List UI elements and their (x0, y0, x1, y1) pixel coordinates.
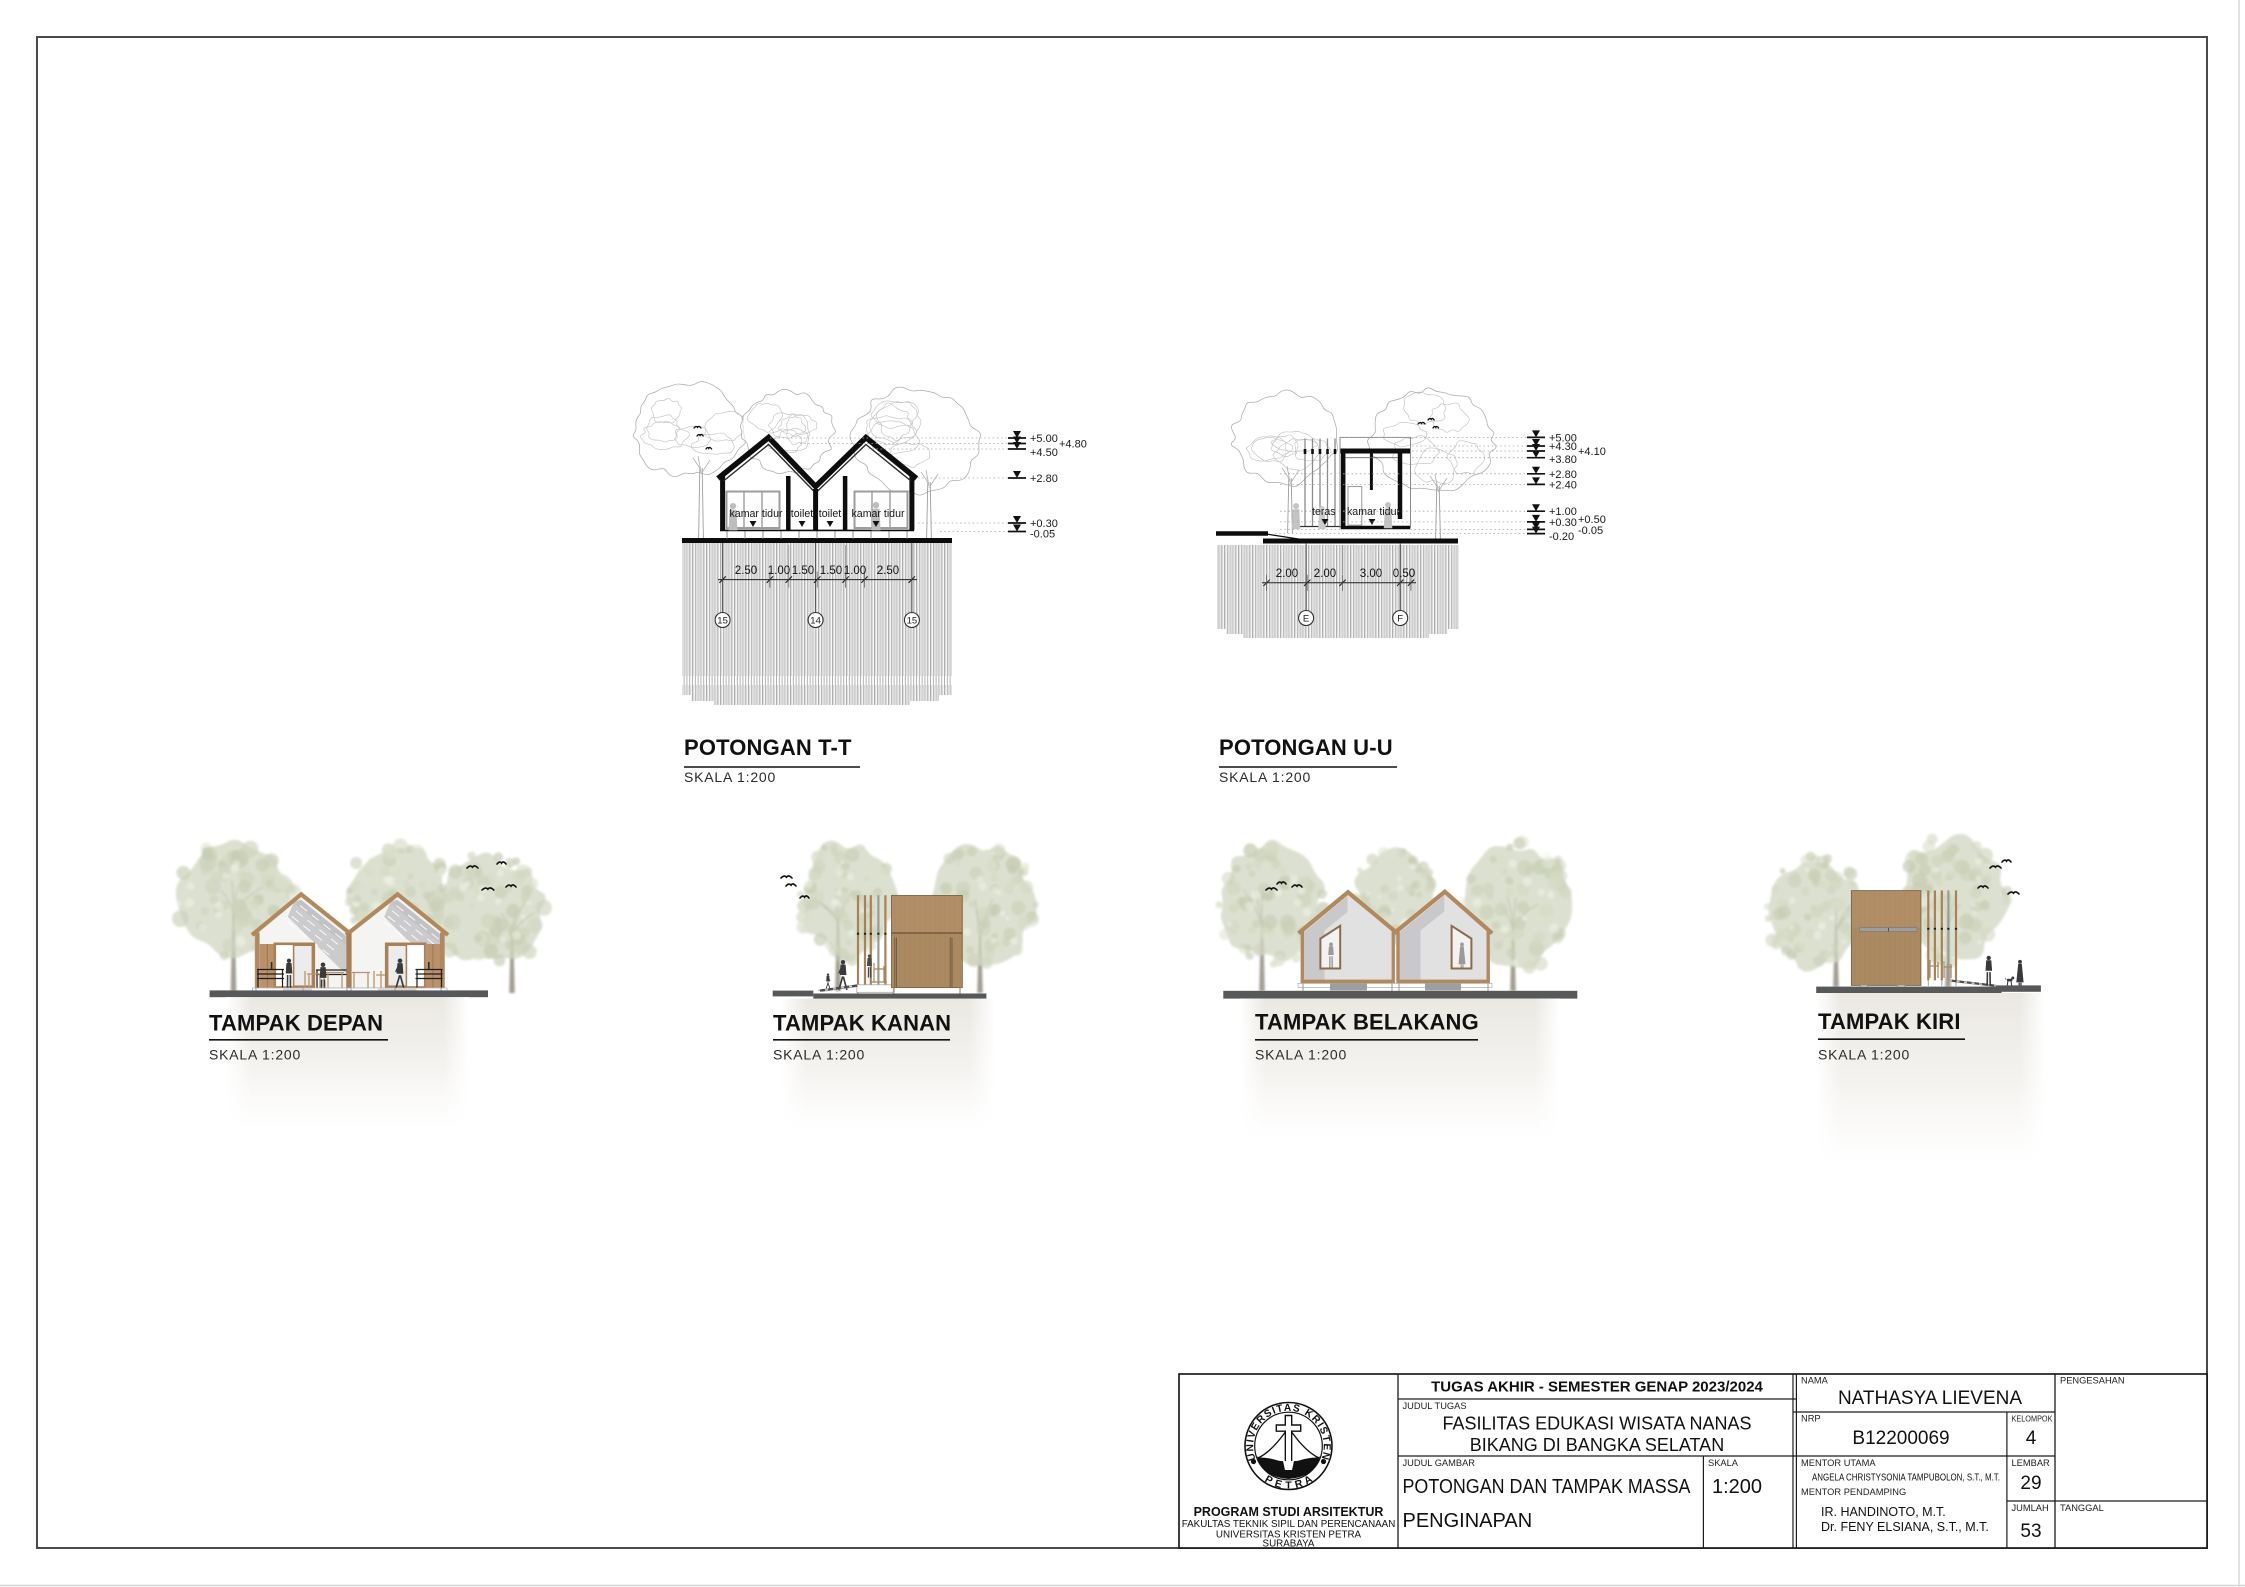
svg-text:POTONGAN U-U: POTONGAN U-U (1219, 735, 1393, 760)
svg-text:JUMLAH: JUMLAH (2012, 1503, 2049, 1513)
svg-text:FASILITAS EDUKASI WISATA NANAS: FASILITAS EDUKASI WISATA NANAS (1442, 1414, 1751, 1434)
svg-text:NAMA: NAMA (1801, 1376, 1829, 1386)
svg-text:SKALA 1:200: SKALA 1:200 (209, 1047, 301, 1063)
svg-text:MENTOR PENDAMPING: MENTOR PENDAMPING (1801, 1487, 1906, 1497)
svg-text:-0.05: -0.05 (1030, 529, 1055, 541)
svg-text:F: F (1397, 613, 1403, 624)
svg-text:JUDUL GAMBAR: JUDUL GAMBAR (1403, 1458, 1476, 1468)
svg-text:4: 4 (2026, 1428, 2037, 1449)
svg-text:-0.20: -0.20 (1549, 531, 1574, 543)
svg-text:1.50: 1.50 (820, 565, 842, 577)
svg-text:15: 15 (907, 615, 918, 626)
svg-text:POTONGAN DAN TAMPAK MASSA: POTONGAN DAN TAMPAK MASSA (1403, 1476, 1692, 1498)
svg-text:toilet: toilet (819, 508, 841, 520)
svg-text:+5.00: +5.00 (1030, 433, 1058, 445)
svg-text:TAMPAK DEPAN: TAMPAK DEPAN (209, 1010, 383, 1035)
svg-text:E: E (1303, 613, 1309, 624)
svg-text:kamar tidur: kamar tidur (1347, 506, 1400, 518)
svg-text:+4.50: +4.50 (1030, 447, 1058, 459)
svg-text:TUGAS AKHIR - SEMESTER GENAP 2: TUGAS AKHIR - SEMESTER GENAP 2023/2024 (1431, 1379, 1763, 1396)
svg-text:SKALA 1:200: SKALA 1:200 (684, 769, 776, 785)
svg-text:PROGRAM STUDI ARSITEKTUR: PROGRAM STUDI ARSITEKTUR (1194, 1505, 1384, 1519)
svg-text:JUDUL TUGAS: JUDUL TUGAS (1403, 1401, 1467, 1411)
svg-text:IR. HANDINOTO, M.T.: IR. HANDINOTO, M.T. (1821, 1505, 1946, 1519)
svg-text:1:200: 1:200 (1712, 1476, 1762, 1498)
svg-text:+4.10: +4.10 (1578, 446, 1606, 458)
svg-text:1.00: 1.00 (768, 565, 790, 577)
svg-text:BIKANG DI BANGKA SELATAN: BIKANG DI BANGKA SELATAN (1470, 1435, 1724, 1455)
svg-text:SKALA: SKALA (1708, 1458, 1739, 1468)
svg-text:T: T (1285, 1480, 1292, 1492)
svg-text:PENGINAPAN: PENGINAPAN (1403, 1510, 1533, 1532)
svg-text:15: 15 (717, 615, 728, 626)
svg-text:2.00: 2.00 (1276, 568, 1298, 580)
svg-text:+4.80: +4.80 (1059, 439, 1087, 451)
svg-text:MENTOR UTAMA: MENTOR UTAMA (1801, 1458, 1876, 1468)
svg-text:2.50: 2.50 (735, 565, 757, 577)
svg-text:TAMPAK KANAN: TAMPAK KANAN (773, 1010, 951, 1035)
svg-text:14: 14 (810, 615, 821, 626)
svg-text:NRP: NRP (1801, 1414, 1821, 1424)
svg-text:FAKULTAS TEKNIK SIPIL DAN PERE: FAKULTAS TEKNIK SIPIL DAN PERENCANAAN (1182, 1519, 1396, 1530)
svg-text:teras: teras (1312, 506, 1336, 518)
svg-text:Dr. FENY ELSIANA, S.T., M.T.: Dr. FENY ELSIANA, S.T., M.T. (1821, 1520, 1989, 1534)
svg-text:-0.05: -0.05 (1578, 525, 1603, 537)
svg-text:PENGESAHAN: PENGESAHAN (2060, 1376, 2125, 1386)
svg-text:SKALA 1:200: SKALA 1:200 (1219, 769, 1311, 785)
svg-text:3.00: 3.00 (1360, 568, 1382, 580)
svg-text:+3.80: +3.80 (1549, 454, 1577, 466)
svg-text:kamar tidur: kamar tidur (852, 508, 905, 520)
svg-text:SURABAYA: SURABAYA (1263, 1539, 1315, 1550)
svg-text:toilet: toilet (791, 508, 813, 520)
svg-text:TAMPAK KIRI: TAMPAK KIRI (1818, 1009, 1961, 1034)
svg-text:ANGELA CHRISTYSONIA TAMPUBOLON: ANGELA CHRISTYSONIA TAMPUBOLON, S.T., M.… (1812, 1473, 2000, 1484)
svg-text:29: 29 (2020, 1473, 2041, 1494)
svg-text:0.50: 0.50 (1393, 568, 1415, 580)
svg-text:SKALA 1:200: SKALA 1:200 (1818, 1047, 1910, 1063)
svg-text:LEMBAR: LEMBAR (2012, 1458, 2051, 1468)
svg-text:TAMPAK BELAKANG: TAMPAK BELAKANG (1255, 1010, 1479, 1035)
svg-text:53: 53 (2020, 1521, 2041, 1542)
svg-text:2.00: 2.00 (1314, 568, 1336, 580)
svg-text:SKALA 1:200: SKALA 1:200 (773, 1047, 865, 1063)
svg-text:+0.30: +0.30 (1549, 517, 1577, 529)
svg-text:2.50: 2.50 (877, 565, 899, 577)
svg-text:POTONGAN T-T: POTONGAN T-T (684, 735, 852, 760)
svg-text:+2.40: +2.40 (1549, 479, 1577, 491)
svg-text:kamar tidur: kamar tidur (730, 508, 783, 520)
svg-text:SKALA 1:200: SKALA 1:200 (1255, 1047, 1347, 1063)
svg-text:1.00: 1.00 (844, 565, 866, 577)
svg-text:+2.80: +2.80 (1030, 473, 1058, 485)
svg-text:+4.30: +4.30 (1549, 441, 1577, 453)
svg-text:B12200069: B12200069 (1852, 1428, 1949, 1449)
svg-text:NATHASYA LIEVENA: NATHASYA LIEVENA (1838, 1388, 2022, 1409)
svg-text:KELOMPOK: KELOMPOK (2012, 1414, 2053, 1424)
svg-text:1.50: 1.50 (792, 565, 814, 577)
svg-text:TANGGAL: TANGGAL (2060, 1503, 2104, 1513)
